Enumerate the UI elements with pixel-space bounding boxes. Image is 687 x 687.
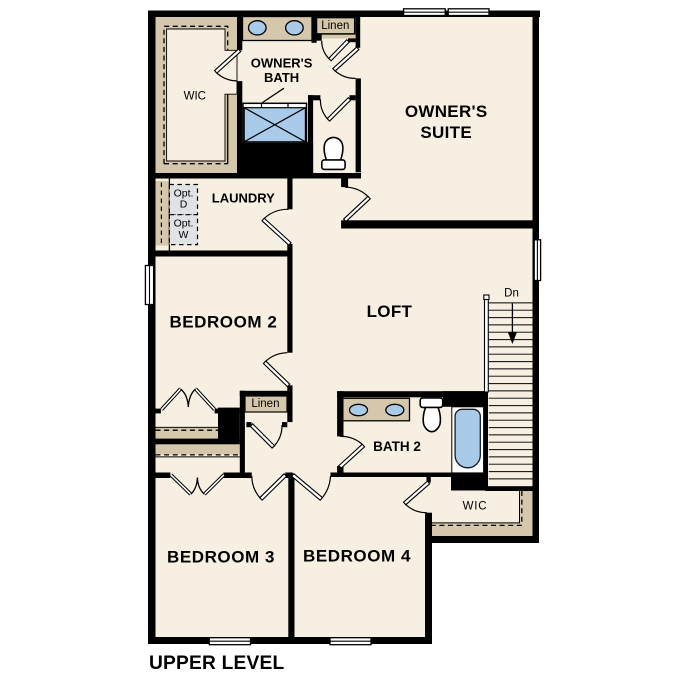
svg-text:BATH 2: BATH 2 bbox=[373, 439, 421, 454]
svg-text:LOFT: LOFT bbox=[367, 302, 413, 321]
svg-text:D: D bbox=[180, 199, 188, 211]
svg-text:Opt.: Opt. bbox=[174, 218, 194, 230]
svg-text:Dn: Dn bbox=[504, 288, 519, 300]
svg-text:BATH: BATH bbox=[264, 70, 299, 85]
svg-text:BEDROOM 2: BEDROOM 2 bbox=[169, 313, 277, 332]
svg-text:OWNER'S: OWNER'S bbox=[251, 56, 313, 71]
svg-text:WIC: WIC bbox=[184, 91, 206, 103]
svg-text:Linen: Linen bbox=[321, 20, 349, 32]
svg-text:UPPER LEVEL: UPPER LEVEL bbox=[149, 653, 285, 674]
svg-text:Linen: Linen bbox=[251, 398, 279, 410]
svg-text:WIC: WIC bbox=[463, 501, 488, 513]
svg-text:SUITE: SUITE bbox=[420, 123, 472, 142]
svg-text:W: W bbox=[179, 229, 189, 241]
svg-text:BEDROOM 4: BEDROOM 4 bbox=[303, 546, 411, 565]
svg-text:BEDROOM 3: BEDROOM 3 bbox=[167, 547, 275, 566]
svg-text:LAUNDRY: LAUNDRY bbox=[212, 191, 275, 206]
svg-text:OWNER'S: OWNER'S bbox=[405, 102, 488, 121]
